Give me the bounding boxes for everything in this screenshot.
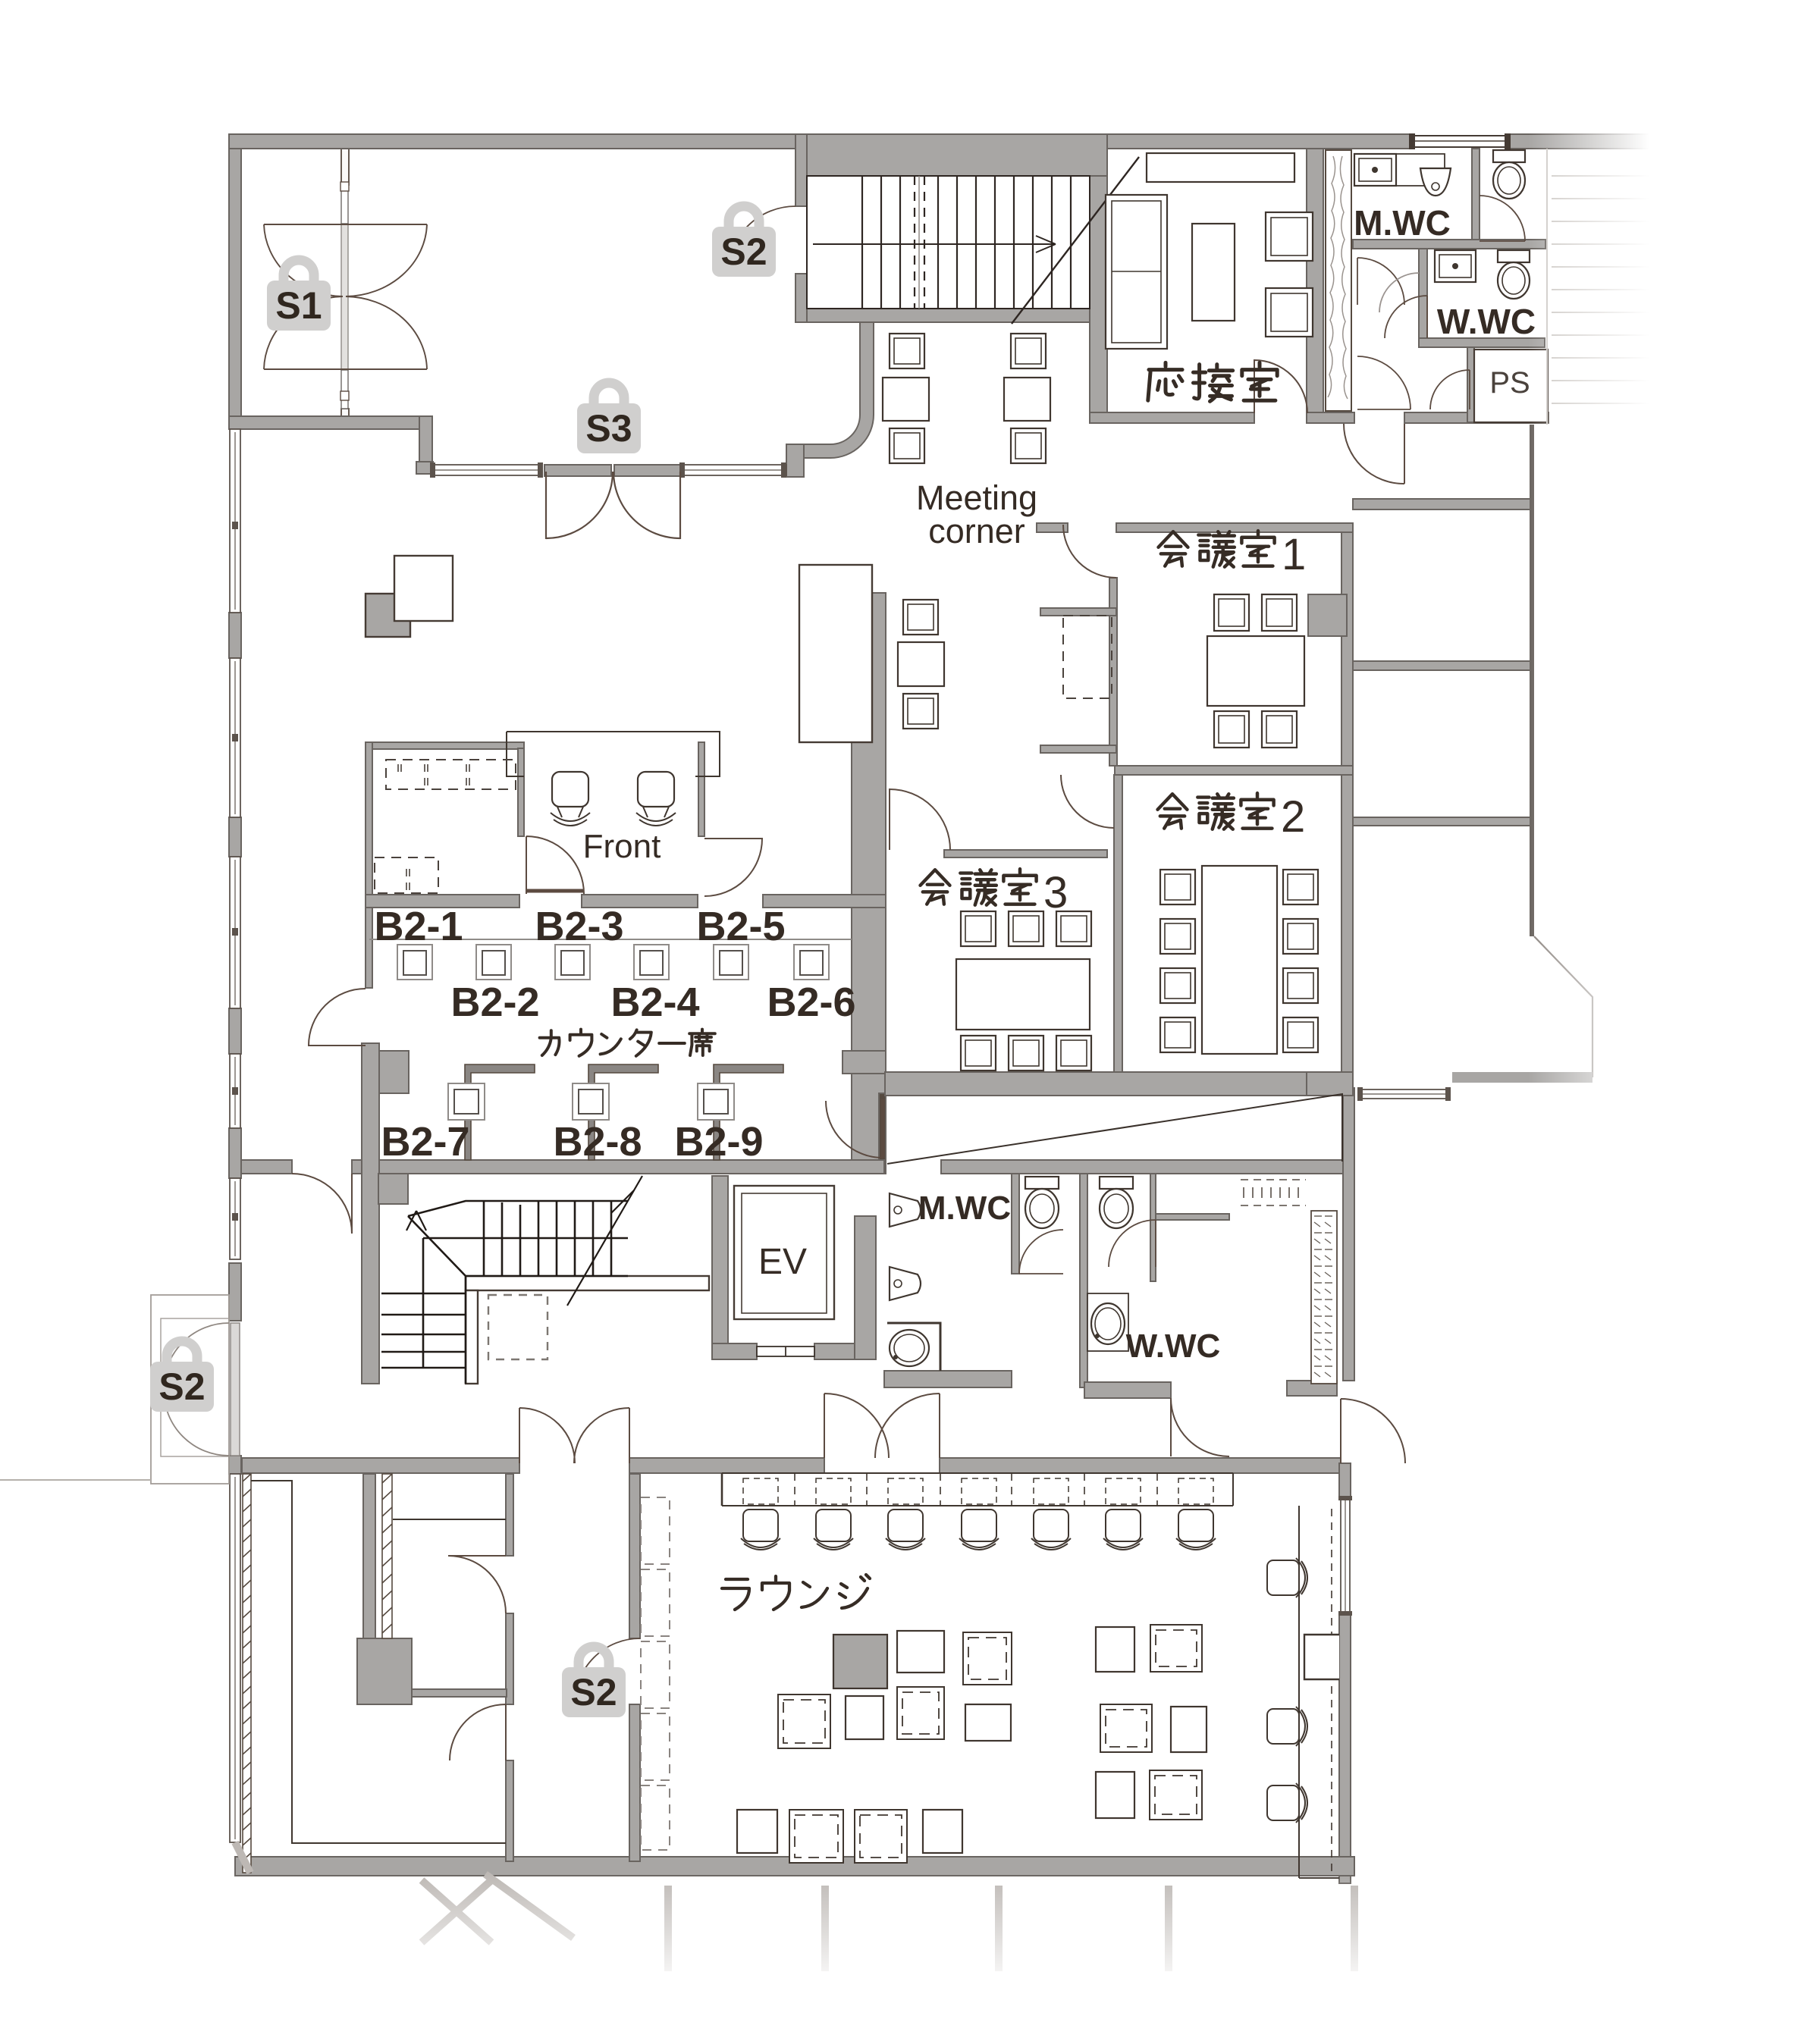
svg-text:corner: corner bbox=[928, 512, 1025, 550]
svg-text:1: 1 bbox=[1282, 530, 1306, 579]
svg-text:B2-7: B2-7 bbox=[381, 1119, 469, 1165]
svg-text:M.WC: M.WC bbox=[918, 1190, 1011, 1227]
svg-text:B2-5: B2-5 bbox=[696, 904, 785, 949]
svg-text:S2: S2 bbox=[158, 1365, 205, 1408]
svg-text:S2: S2 bbox=[570, 1671, 617, 1713]
svg-text:B2-3: B2-3 bbox=[535, 904, 623, 949]
svg-text:B2-4: B2-4 bbox=[610, 980, 699, 1025]
svg-text:S2: S2 bbox=[720, 230, 767, 273]
svg-text:PS: PS bbox=[1489, 366, 1530, 400]
svg-text:S3: S3 bbox=[585, 407, 632, 450]
svg-text:B2-8: B2-8 bbox=[553, 1119, 642, 1165]
svg-text:B2-1: B2-1 bbox=[374, 904, 463, 949]
svg-text:W.WC: W.WC bbox=[1437, 302, 1536, 341]
svg-text:W.WC: W.WC bbox=[1126, 1328, 1221, 1365]
svg-text:3: 3 bbox=[1043, 868, 1068, 917]
svg-text:2: 2 bbox=[1281, 792, 1305, 842]
svg-text:S1: S1 bbox=[275, 284, 322, 327]
svg-text:Front: Front bbox=[583, 828, 661, 865]
svg-text:M.WC: M.WC bbox=[1354, 203, 1451, 243]
svg-text:B2-6: B2-6 bbox=[767, 980, 855, 1025]
svg-text:EV: EV bbox=[758, 1242, 807, 1282]
svg-text:B2-9: B2-9 bbox=[674, 1119, 763, 1165]
svg-text:B2-2: B2-2 bbox=[450, 980, 539, 1025]
